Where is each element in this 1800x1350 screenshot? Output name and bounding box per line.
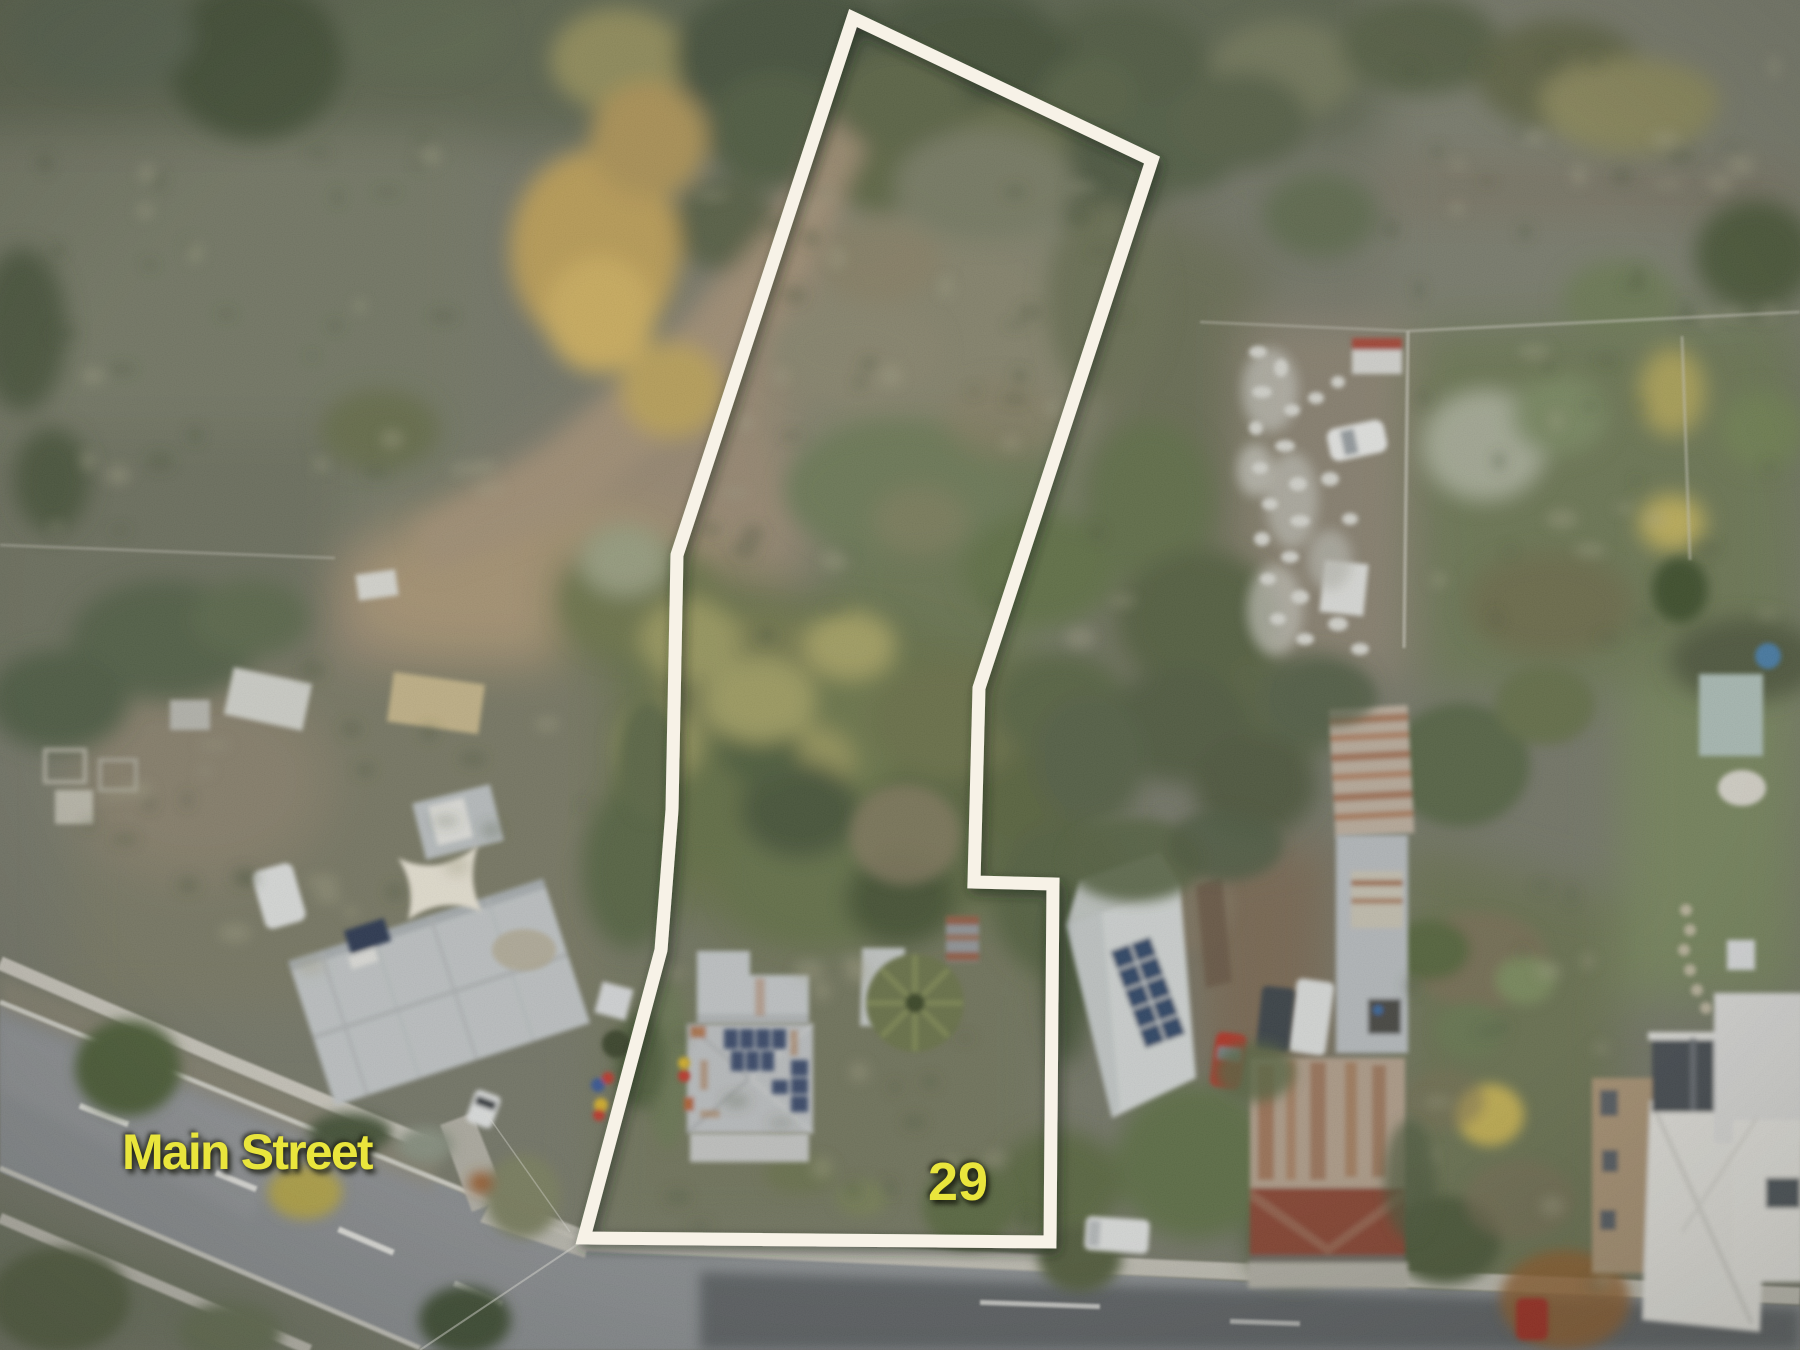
svg-text:Main Street: Main Street <box>122 1124 374 1180</box>
svg-text:29: 29 <box>928 1152 988 1212</box>
